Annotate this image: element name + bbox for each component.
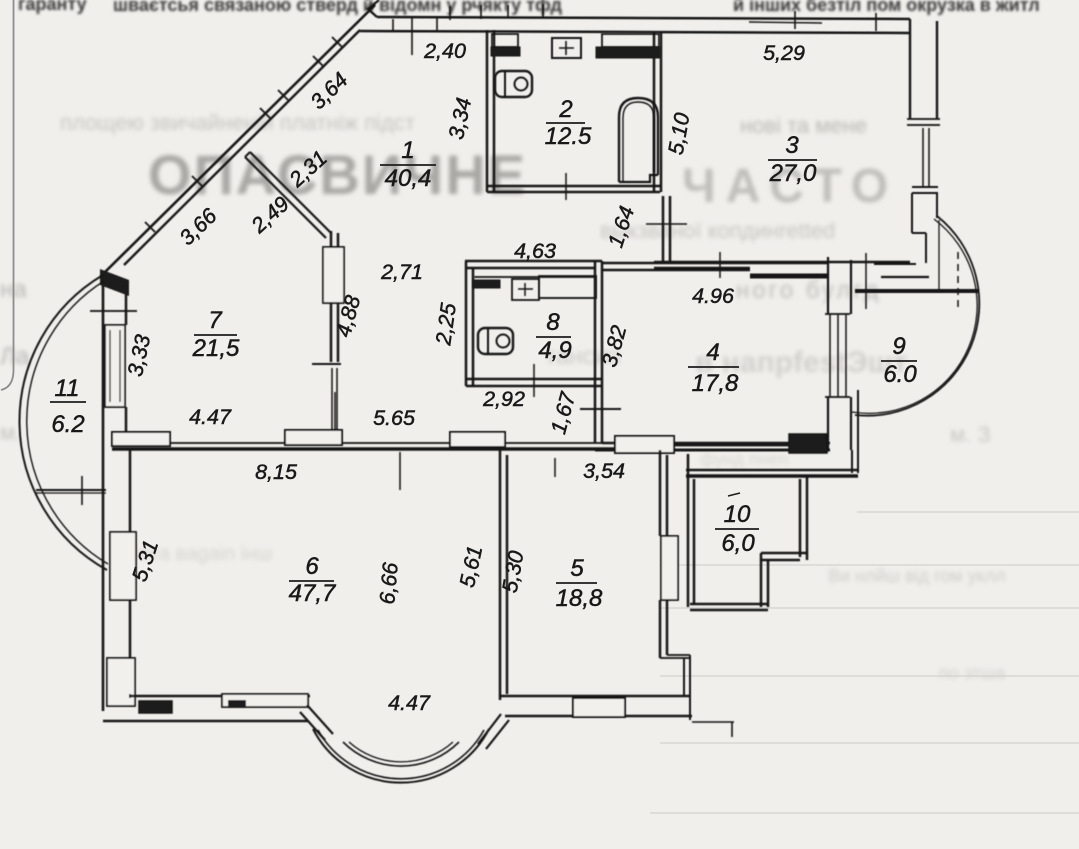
svg-text:4,63: 4,63	[514, 239, 556, 263]
svg-text:3: 3	[785, 132, 799, 159]
svg-text:47,7: 47,7	[289, 580, 337, 607]
svg-text:2,71: 2,71	[380, 260, 423, 284]
svg-text:по этша: по этша	[939, 663, 1006, 683]
svg-text:4.47: 4.47	[189, 405, 232, 429]
svg-text:2,40: 2,40	[423, 39, 466, 63]
svg-text:й інших безтіл пом окрузка в ж: й інших безтіл пом окрузка в житл	[733, 0, 1040, 15]
svg-text:9: 9	[892, 333, 905, 360]
svg-text:40,4: 40,4	[385, 165, 432, 192]
svg-text:18,8: 18,8	[556, 585, 603, 612]
svg-text:м. З: м. З	[950, 422, 991, 447]
svg-text:2: 2	[558, 96, 572, 123]
svg-text:5,29: 5,29	[763, 41, 805, 65]
svg-text:2,92: 2,92	[482, 387, 525, 411]
svg-text:шваєтсья связаною стверд й від: шваєтсья связаною стверд й відомн у рчяк…	[113, 0, 563, 15]
svg-text:4.47: 4.47	[388, 691, 431, 715]
svg-text:фунд пнen: фунд пнen	[700, 449, 789, 469]
svg-text:6,66: 6,66	[375, 561, 403, 605]
svg-text:12.5: 12.5	[545, 123, 592, 150]
svg-text:6.0: 6.0	[883, 361, 917, 388]
svg-text:4,9: 4,9	[538, 337, 571, 364]
svg-text:6.2: 6.2	[51, 411, 84, 438]
svg-text:11: 11	[55, 375, 80, 402]
svg-text:8,15: 8,15	[255, 460, 298, 484]
svg-text:6: 6	[305, 553, 319, 580]
svg-text:5: 5	[570, 555, 584, 582]
svg-text:8: 8	[546, 309, 560, 336]
svg-text:10: 10	[724, 501, 751, 528]
svg-text:5.65: 5.65	[373, 406, 416, 430]
svg-text:27,0: 27,0	[769, 160, 817, 187]
svg-text:3,54: 3,54	[583, 459, 625, 483]
svg-text:21,5: 21,5	[192, 335, 240, 362]
svg-text:гаранту: гаранту	[18, 0, 87, 14]
svg-text:нові та мене: нові та мене	[740, 113, 867, 138]
svg-text:6,0: 6,0	[721, 530, 755, 557]
svg-text:4.96: 4.96	[692, 284, 734, 308]
svg-text:Ви нлйш від гом уклл: Ви нлйш від гом уклл	[828, 566, 1006, 586]
svg-text:Ла: Ла	[0, 343, 30, 370]
svg-text:площею звичайненій платніж під: площею звичайненій платніж підст	[60, 110, 415, 135]
svg-text:4: 4	[706, 339, 719, 366]
svg-text:1: 1	[401, 137, 414, 164]
svg-text:7: 7	[208, 307, 223, 334]
svg-text:17,8: 17,8	[692, 370, 739, 397]
svg-text:м.: м.	[0, 420, 21, 445]
